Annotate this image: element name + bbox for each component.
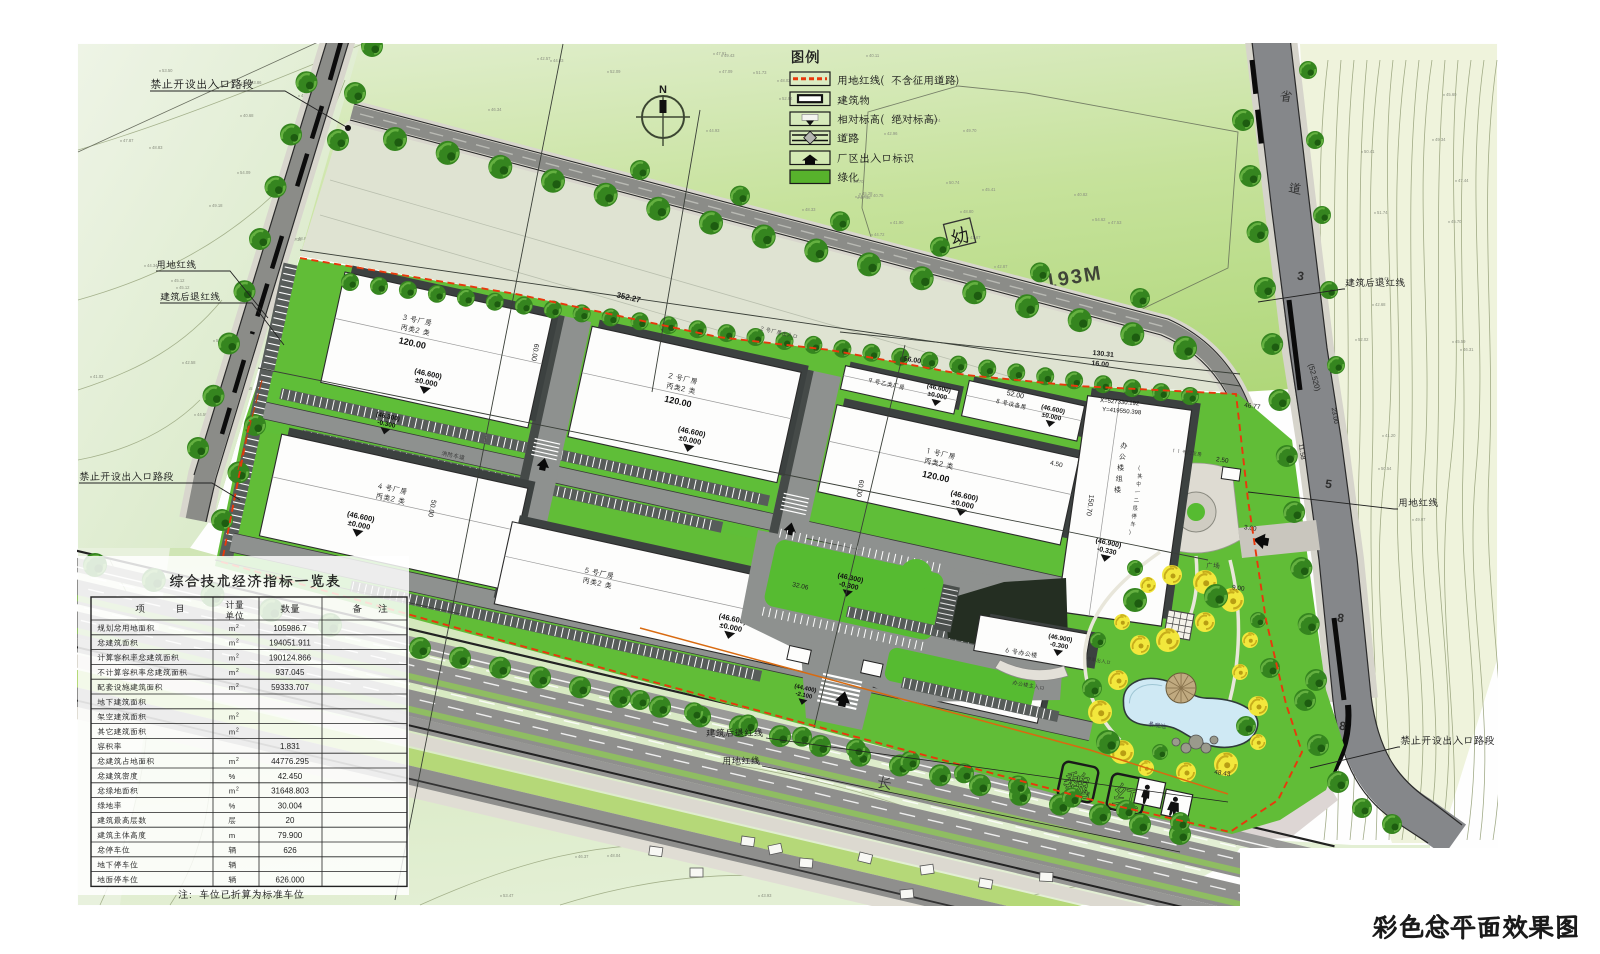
svg-text:42.68: 42.68 xyxy=(1375,302,1386,307)
svg-text:626: 626 xyxy=(283,846,297,855)
svg-text:937.045: 937.045 xyxy=(276,668,305,677)
svg-text:%: % xyxy=(229,801,236,810)
svg-text:49.07: 49.07 xyxy=(1415,517,1426,522)
svg-text:43.93: 43.93 xyxy=(761,893,772,898)
svg-text:194051.911: 194051.911 xyxy=(269,639,311,648)
svg-text:54.62: 54.62 xyxy=(1095,217,1106,222)
svg-text:53.47: 53.47 xyxy=(503,893,514,898)
svg-text:41.20: 41.20 xyxy=(1385,433,1396,438)
svg-text:m: m xyxy=(229,757,235,766)
svg-text:m: m xyxy=(229,831,235,840)
svg-text:49.34: 49.34 xyxy=(1435,137,1446,142)
svg-text:42.87: 42.87 xyxy=(997,264,1008,269)
svg-text:2: 2 xyxy=(236,639,239,645)
svg-text:m: m xyxy=(229,624,235,633)
svg-text:59333.707: 59333.707 xyxy=(271,683,309,692)
svg-text:40.82: 40.82 xyxy=(1077,192,1088,197)
svg-text:105986.7: 105986.7 xyxy=(273,624,307,633)
svg-text:2: 2 xyxy=(236,787,239,793)
svg-text:40.11: 40.11 xyxy=(869,53,880,58)
svg-text:45.70: 45.70 xyxy=(853,179,864,184)
svg-text:42.58: 42.58 xyxy=(185,360,196,365)
svg-text:46.34: 46.34 xyxy=(491,107,502,112)
svg-text:2: 2 xyxy=(236,683,239,689)
svg-text:45.59: 45.59 xyxy=(1455,339,1466,344)
svg-text:2: 2 xyxy=(236,713,239,719)
svg-text:m: m xyxy=(229,727,235,736)
svg-text:m: m xyxy=(229,639,235,648)
svg-text:51.74: 51.74 xyxy=(1377,210,1388,215)
svg-text:45.12: 45.12 xyxy=(179,285,190,290)
svg-text:626.000: 626.000 xyxy=(276,875,305,884)
svg-text:30.004: 30.004 xyxy=(278,801,303,810)
svg-text:31648.803: 31648.803 xyxy=(271,787,309,796)
svg-text:52.02: 52.02 xyxy=(1358,337,1369,342)
svg-text:48.83: 48.83 xyxy=(152,145,163,150)
svg-text:53.86: 53.86 xyxy=(251,80,262,85)
svg-text:42.57: 42.57 xyxy=(540,56,551,61)
svg-text:45.12: 45.12 xyxy=(174,278,185,283)
svg-text:2: 2 xyxy=(236,757,239,763)
svg-text:53.50: 53.50 xyxy=(162,68,173,73)
svg-text:44.03: 44.03 xyxy=(553,58,564,63)
svg-text:40.68: 40.68 xyxy=(243,113,254,118)
svg-text:48.04: 48.04 xyxy=(610,853,621,858)
svg-text:20: 20 xyxy=(286,816,295,825)
svg-text:m: m xyxy=(229,713,235,722)
svg-text:48.33: 48.33 xyxy=(805,207,816,212)
svg-text:41.02: 41.02 xyxy=(93,374,104,379)
svg-text:m: m xyxy=(229,787,235,796)
svg-text:50.74: 50.74 xyxy=(949,180,960,185)
svg-text:2: 2 xyxy=(236,653,239,659)
svg-text:%: % xyxy=(229,772,236,781)
svg-text:50.54: 50.54 xyxy=(1381,466,1392,471)
svg-text:45.41: 45.41 xyxy=(985,187,996,192)
svg-text:49.70: 49.70 xyxy=(966,128,977,133)
svg-text:47.09: 47.09 xyxy=(722,69,733,74)
svg-text:42.450: 42.450 xyxy=(278,772,303,781)
svg-text:47.44: 47.44 xyxy=(1458,178,1469,183)
svg-text:44.72: 44.72 xyxy=(874,232,885,237)
svg-text:49.18: 49.18 xyxy=(212,203,223,208)
svg-text:45.70: 45.70 xyxy=(1451,219,1462,224)
svg-text:N: N xyxy=(659,84,667,96)
svg-text:190124.866: 190124.866 xyxy=(269,653,312,662)
svg-text:46.31: 46.31 xyxy=(1463,347,1474,352)
svg-text:50.41: 50.41 xyxy=(1364,149,1375,154)
svg-text:47.91: 47.91 xyxy=(716,51,727,56)
svg-text:1.831: 1.831 xyxy=(280,742,301,751)
svg-text:m: m xyxy=(229,653,235,662)
svg-text:79.900: 79.900 xyxy=(278,831,303,840)
svg-text:48.80: 48.80 xyxy=(963,209,974,214)
svg-text:42.96: 42.96 xyxy=(887,131,898,136)
svg-text:2: 2 xyxy=(236,668,239,674)
svg-text:2: 2 xyxy=(236,624,239,630)
svg-text:54.09: 54.09 xyxy=(240,170,251,175)
svg-text:47.53: 47.53 xyxy=(1111,220,1122,225)
svg-text:45.60: 45.60 xyxy=(1446,92,1457,97)
svg-text:51.73: 51.73 xyxy=(756,70,767,75)
svg-text:41.90: 41.90 xyxy=(893,220,904,225)
svg-text:52.09: 52.09 xyxy=(610,69,621,74)
svg-text:47.87: 47.87 xyxy=(123,138,134,143)
svg-text:44.93: 44.93 xyxy=(709,128,720,133)
svg-text:m: m xyxy=(229,668,235,677)
svg-text:40.75: 40.75 xyxy=(873,193,884,198)
svg-text:2: 2 xyxy=(236,727,239,733)
svg-text:46.37: 46.37 xyxy=(578,854,589,859)
svg-text:51.88: 51.88 xyxy=(858,194,869,199)
svg-text:44776.295: 44776.295 xyxy=(271,757,309,766)
svg-text:m: m xyxy=(229,683,235,692)
svg-text:44.34: 44.34 xyxy=(147,263,158,268)
